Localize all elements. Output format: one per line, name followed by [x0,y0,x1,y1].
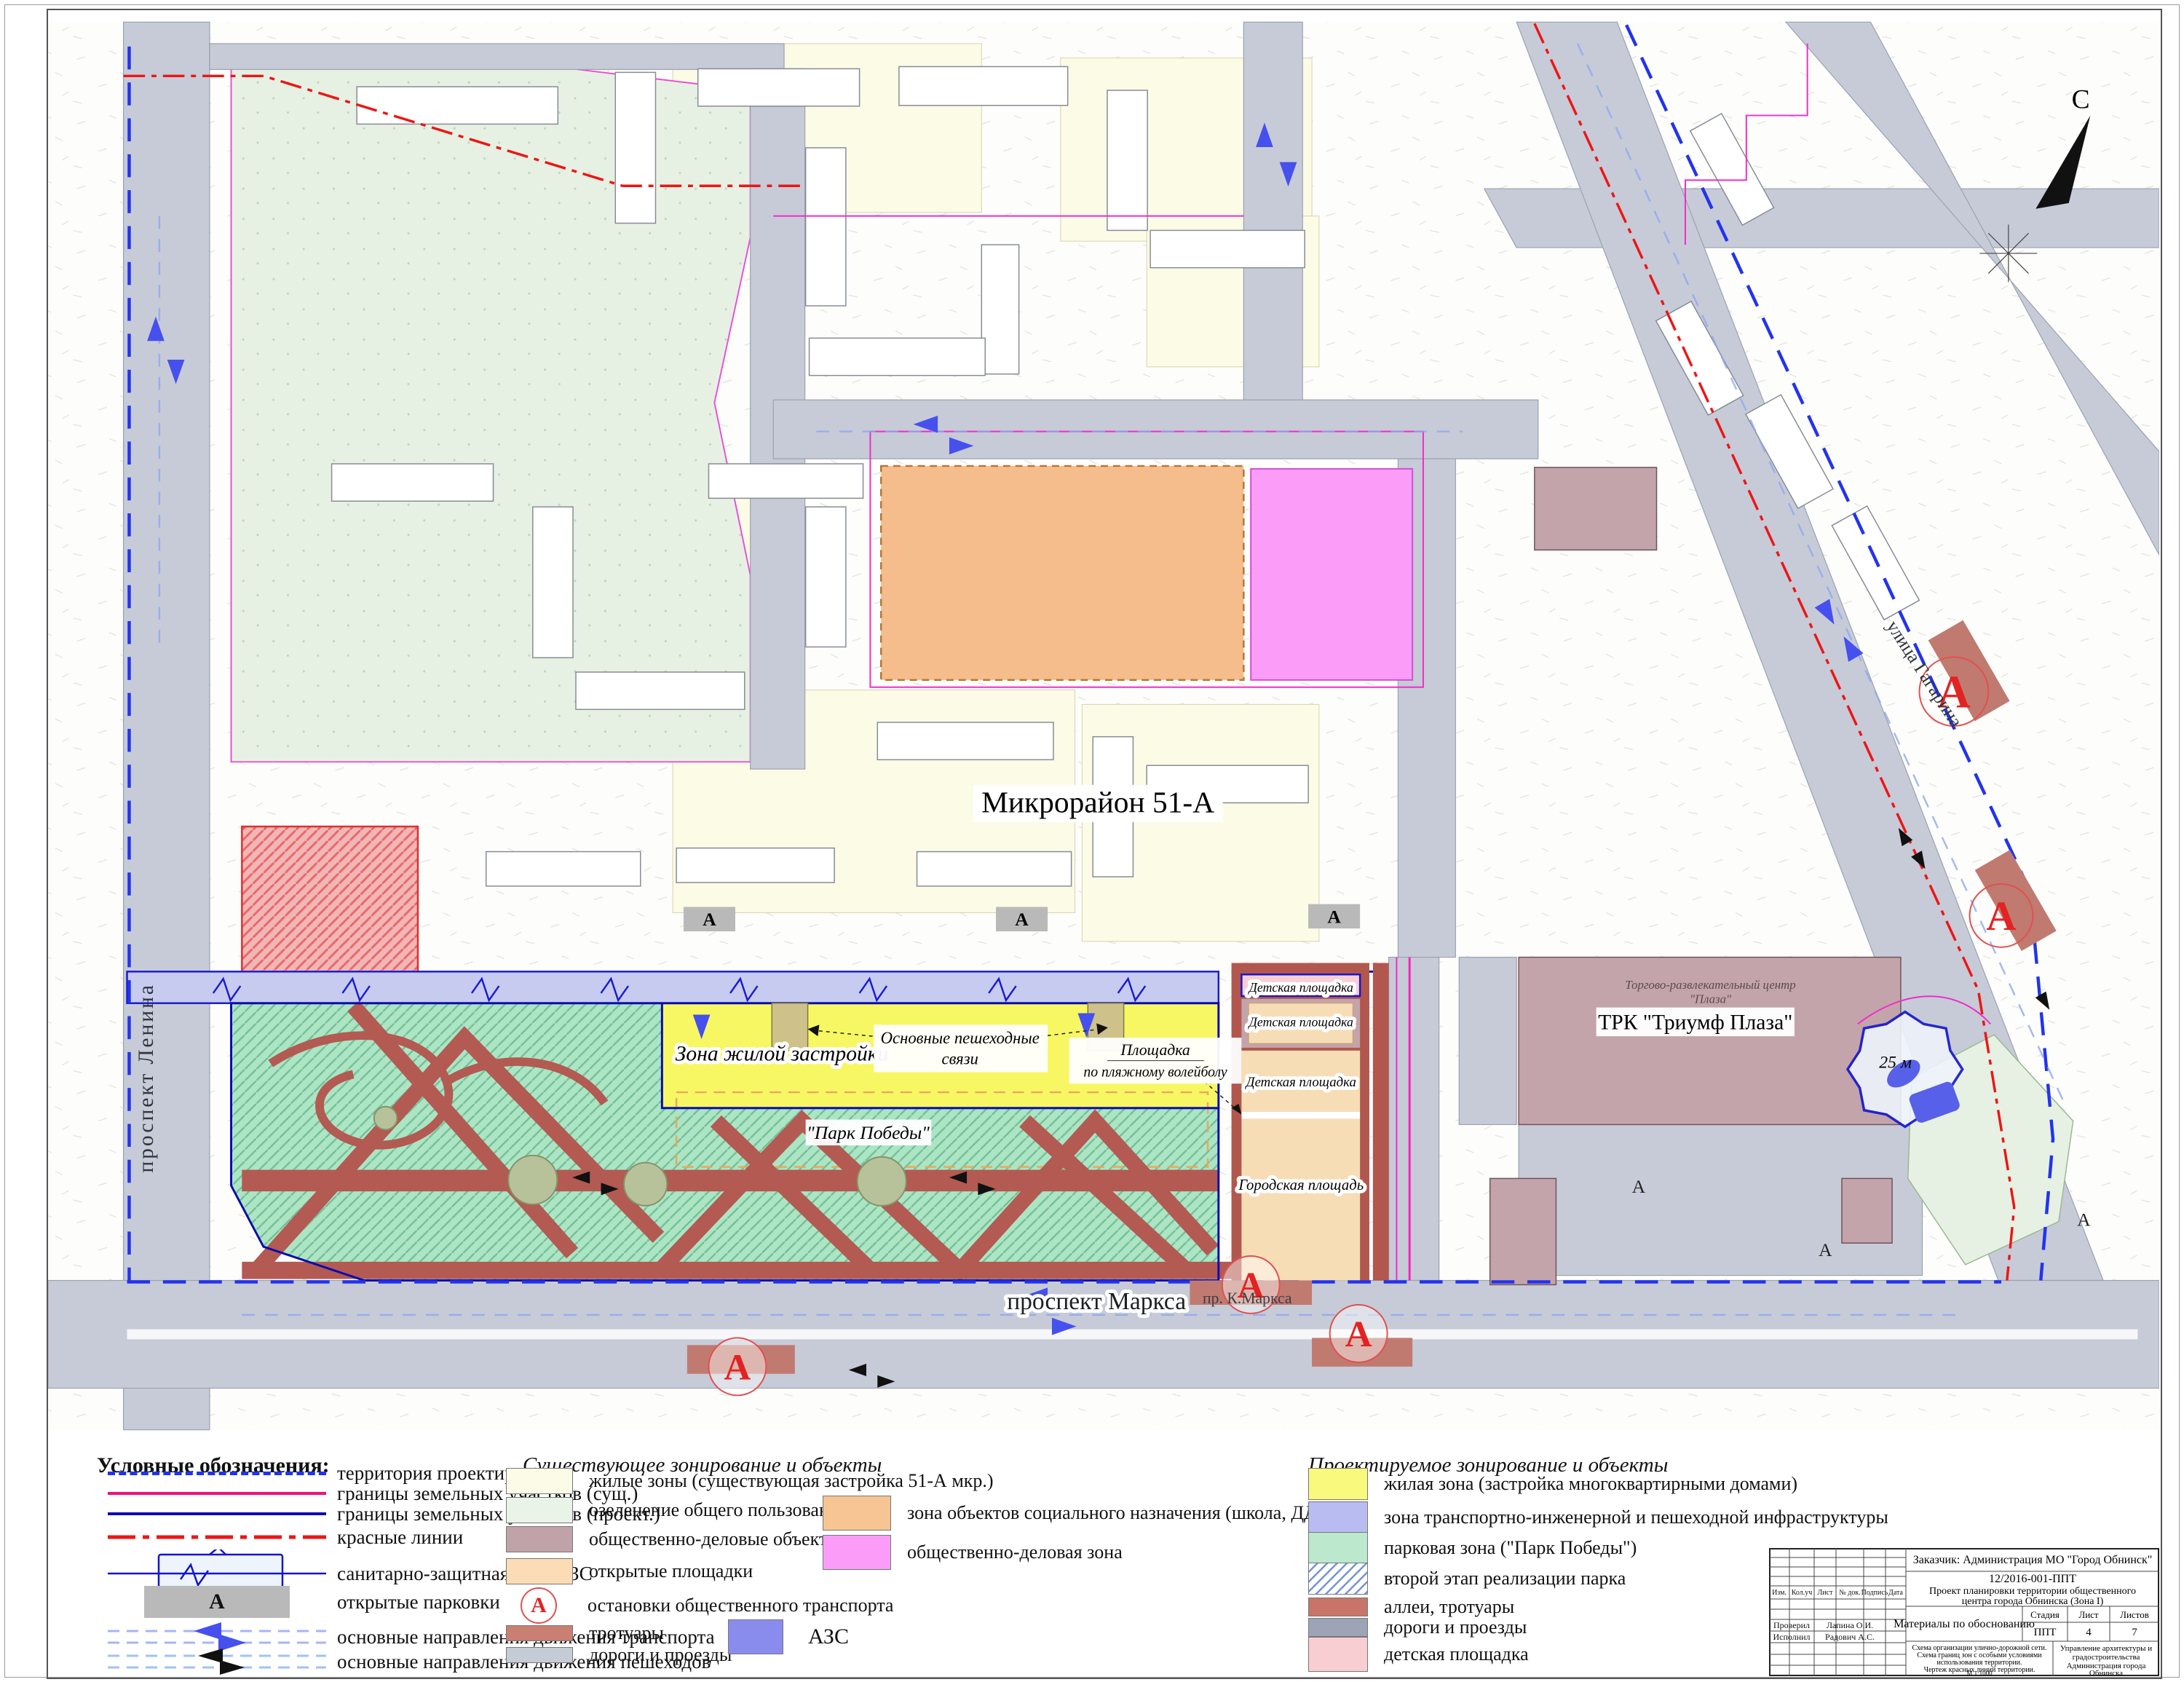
bus-stop-letter: А [531,1593,547,1618]
tb-project-name: Проект планировки территории общественно… [1929,1586,2136,1597]
legend-label: общественно-деловая зона [907,1541,1123,1563]
playground-label: Детская площадка [1248,1014,1353,1029]
city-square-label: Городская площадь [1238,1177,1364,1193]
school-zone [881,466,1243,680]
legend-item-playground: детская площадка [1308,1637,1529,1672]
legend-label: остановки общественного транспорта [587,1595,893,1616]
roads-swatch [506,1647,573,1663]
legend-item-open-parking: А открытые парковки [97,1584,500,1619]
tb-sheets-value: 7 [2132,1627,2137,1638]
street-label-lenina: проспект Ленина [135,983,158,1173]
legend-item-transport-zone: зона транспортно-инженерной и пешеходной… [1308,1501,1888,1533]
existing-border-line-icon [108,1492,326,1495]
master-plan-map: А А А А А А А А А А А С [48,10,2159,1442]
bus-stop-letter: А [1986,893,2016,939]
title-block: Изм. Кол.уч Лист № док. Подпись Дата Про… [1769,1548,2159,1676]
legend-item-red-lines: красные линии [97,1525,463,1549]
park-zone-swatch [1308,1532,1368,1564]
tb-dept-line: Обнинска [2089,1669,2123,1676]
legend-label: дороги и проезды [1384,1616,1527,1638]
legend-label: зона объектов социального назначения (шк… [907,1502,1337,1524]
tb-sheet-value: 4 [2086,1627,2092,1638]
legend-label: дороги и проезды [589,1644,732,1666]
tb-hdr-koluch: Кол.уч [1792,1589,1813,1597]
legend-item-bus-stops: А остановки общественного транспорта [506,1587,893,1624]
parking-letter: А [2077,1209,2091,1231]
parking-letter: А [703,909,716,930]
legend-item-residential-existing: жилые зоны (существующая застройка 51-А … [506,1468,994,1494]
public-business-zone [1251,469,1412,680]
legend-item-public-business-zone: общественно-деловая зона [823,1535,1123,1570]
red-line-icon [108,1533,326,1541]
mall-label: ТРК "Триумф Плаза" [1598,1011,1792,1034]
legend-item-territory: территория проектирования [97,1462,572,1484]
business-objects-swatch [506,1526,573,1552]
tb-executed-label: Исполнил [1773,1632,1810,1642]
parking-box-letter: А [209,1590,225,1614]
green-existing-swatch [506,1497,573,1523]
district-label: Микрорайон 51-А [981,785,1214,818]
tb-doc-number: 12/2016-001-ППТ [1989,1573,2076,1585]
sidewalks-swatch [506,1625,573,1641]
territory-line-icon [108,1472,326,1475]
second-stage-swatch [1308,1563,1368,1595]
tb-stage-value: ППТ [2034,1627,2057,1638]
tb-materials: Материалы по обоснованию [1894,1618,2035,1630]
legend-label: парковая зона ("Парк Победы") [1384,1537,1637,1559]
mall-sub-label: Торгово-развлекательный центр [1625,978,1795,992]
playground-swatch [1308,1637,1368,1672]
legend-item-sidewalks-existing: тротуары [506,1622,664,1644]
legend-label: аллеи, тротуары [1384,1596,1514,1618]
tb-sheets-label: Листов [2120,1609,2149,1620]
tb-hdr-data: Дата [1888,1589,1903,1597]
legend-item-park-second-stage: второй этап реализации парка [1308,1563,1626,1595]
tb-dept-line: градостроительства [2073,1653,2140,1662]
legend-item-park-zone: парковая зона ("Парк Победы") [1308,1532,1637,1564]
residential-zone-label: Зона жилой застройки [676,1043,889,1066]
playground-label: Детская площадка [1248,980,1353,995]
bus-stop-icon: А [506,1587,571,1624]
volleyball-label: Площадка [1120,1041,1190,1059]
legend-item-social-zone: зона объектов социального назначения (шк… [823,1496,1337,1531]
legend-item-azs: АЗС [728,1619,849,1654]
legend-label: открытые площадки [589,1560,753,1582]
tb-customer: Заказчик: Администрация МО "Город Обнинс… [1913,1554,2153,1566]
residential-existing-swatch [506,1468,573,1494]
legend-label: тротуары [589,1622,664,1644]
pedestrian-links-label: Основные пешеходные [881,1029,1040,1047]
azs-radius-label: 25 м [1879,1054,1912,1073]
tb-hdr-list: Лист [1818,1589,1834,1597]
green-zone-existing [232,68,751,762]
tb-stage-label: Стадия [2030,1609,2060,1620]
tb-checked-label: Проверил [1773,1620,1810,1630]
mall-sub-label: "Плаза" [1690,992,1732,1006]
tb-sheet-label: Лист [2078,1609,2099,1620]
legend-label: открытые парковки [337,1591,500,1614]
legend-item-roads-existing: дороги и проезды [506,1644,732,1666]
plan-sheet: А А А А А А А А А А А С [0,0,2184,1682]
transport-infrastructure-band [127,971,1219,1003]
parking-letter: А [1327,906,1341,927]
legend-label: жилая зона (застройка многоквартирными д… [1384,1473,1797,1495]
legend-item-alleys: аллеи, тротуары [1308,1596,1514,1618]
tb-hdr-izm: Изм. [1772,1589,1787,1597]
parking-letter: А [1015,909,1029,930]
transport-zone-swatch [1308,1501,1368,1533]
tb-project-name: центра города Обнинска (Зона I) [1962,1596,2104,1607]
legend-label: детская площадка [1384,1643,1529,1665]
street-label-marksa-short: пр. К.Маркса [1203,1290,1292,1307]
projected-border-line-icon [108,1512,326,1515]
parking-box-icon: А [144,1586,290,1618]
bus-stop-letter: А [1345,1314,1372,1355]
legend-item-business-objects: общественно-деловые объекты [506,1526,840,1552]
legend-item-open-grounds: открытые площадки [506,1558,753,1584]
tb-hdr-podpis: Подпись [1861,1589,1888,1597]
pedestrian-links-label: связи [942,1050,978,1068]
legend-label: жилые зоны (существующая застройка 51-А … [589,1470,994,1492]
legend-label: красные линии [337,1526,463,1549]
legend-label: второй этап реализации парка [1384,1568,1626,1590]
parking-letter: А [1819,1239,1832,1260]
street-label-marksa: проспект Маркса [1007,1288,1186,1315]
park-label: "Парк Победы" [807,1122,930,1143]
bus-stop-letter: А [724,1347,751,1389]
open-grounds-swatch [506,1558,573,1584]
pedestrian-direction-icon [108,1647,326,1676]
social-zone-swatch [823,1496,891,1531]
bus-stop-circle: А [521,1587,557,1624]
legend-label: АЗС [808,1624,849,1649]
roads-projected-swatch [1308,1618,1368,1637]
legend-label: зона транспортно-инженерной и пешеходной… [1384,1507,1888,1528]
tb-checked-name: Лапина О.И. [1827,1620,1873,1630]
legend-label: озеленение общего пользования [589,1499,848,1521]
azs-swatch [728,1619,783,1654]
parking-letter: А [1632,1176,1646,1197]
north-letter: С [2072,85,2090,115]
tb-hdr-doc: № док. [1839,1589,1861,1597]
legend-item-residential-projected: жилая зона (застройка многоквартирными д… [1308,1468,1797,1500]
residential-projected-swatch [1308,1468,1368,1500]
tb-dept-line: Управление архитектуры и [2060,1644,2152,1653]
playground-label: Детская площадка [1245,1075,1356,1090]
alleys-swatch [1308,1598,1368,1616]
tb-scale: М 1:1000 [1966,1670,1993,1676]
legend-label: общественно-деловые объекты [589,1528,840,1550]
legend-item-green-existing: озеленение общего пользования [506,1497,848,1523]
tb-executed-name: Радович А.С. [1825,1632,1875,1642]
volleyball-label: по пляжному волейболу [1083,1064,1227,1080]
legend-item-roads-projected: дороги и проезды [1308,1616,1527,1638]
playground-column [1232,963,1389,1281]
road-median-strip [127,1330,2138,1340]
public-business-swatch [823,1535,891,1570]
